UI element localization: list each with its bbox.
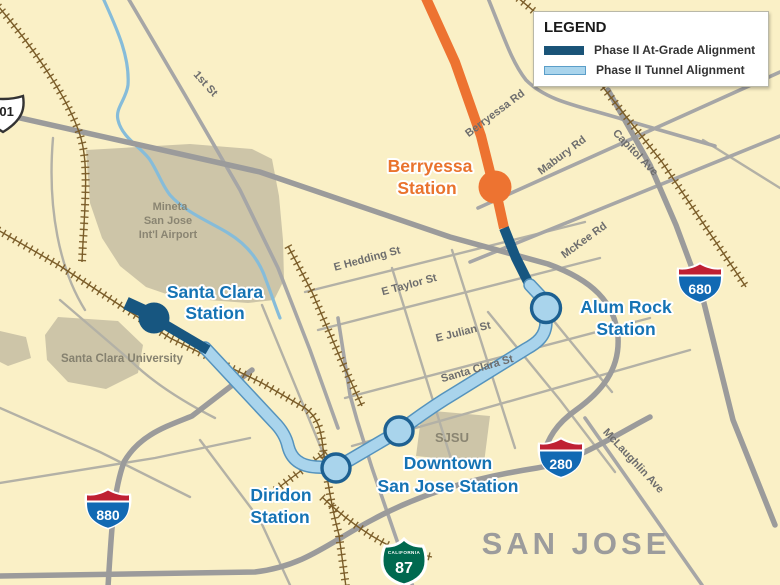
label-alum-rock-2: Station: [596, 319, 655, 339]
station-marker-alum-rock: [532, 294, 561, 323]
label-airport-2: San Jose: [144, 215, 192, 227]
label-diridon-1: Diridon: [250, 485, 311, 505]
tunnel-segment: [205, 285, 546, 468]
legend-item-tunnel: Phase II Tunnel Alignment: [544, 63, 758, 77]
station-marker-berryessa: [479, 171, 512, 204]
street: [0, 408, 190, 497]
ca87-shield: CALIFORNIA 87: [382, 539, 426, 585]
street: [52, 138, 85, 310]
label-julian-st: E Julian St: [435, 319, 493, 344]
tunnel-swatch: [544, 66, 586, 75]
legend-box: LEGEND Phase II At-Grade Alignment Phase…: [533, 11, 769, 87]
legend-item-label: Phase II Tunnel Alignment: [596, 63, 745, 77]
label-downtown-2: San Jose Station: [377, 476, 518, 496]
svg-text:CALIFORNIA: CALIFORNIA: [388, 550, 421, 555]
label-diridon-2: Station: [250, 507, 309, 527]
legend-item-label: Phase II At-Grade Alignment: [594, 43, 755, 57]
svg-text:880: 880: [96, 507, 120, 523]
label-taylor-st: E Taylor St: [380, 272, 438, 298]
svg-text:680: 680: [688, 281, 712, 297]
label-airport-1: Mineta: [153, 201, 189, 213]
label-santa-clara-2: Station: [185, 303, 244, 323]
label-downtown-1: Downtown: [404, 453, 492, 473]
i680-shield: 680: [676, 262, 723, 304]
label-sjsu: SJSU: [435, 430, 469, 445]
label-university: Santa Clara University: [61, 353, 184, 365]
svg-text:101: 101: [0, 104, 14, 119]
i880-freeway: [108, 370, 252, 585]
us101-shield: 101: [0, 96, 24, 132]
svg-text:280: 280: [549, 456, 573, 472]
svg-text:87: 87: [395, 560, 413, 577]
small-block-area: [0, 331, 31, 366]
legend-title: LEGEND: [544, 19, 758, 36]
station-marker-downtown: [385, 417, 413, 445]
label-airport-3: Int'l Airport: [139, 229, 198, 241]
legend-item-at-grade: Phase II At-Grade Alignment: [544, 43, 758, 57]
at-grade-swatch: [544, 46, 584, 55]
label-1st-st: 1st St: [191, 69, 220, 100]
map-canvas[interactable]: 101 680 280 880 CALIFORNIA 87 1st St Ber…: [0, 0, 780, 585]
station-marker-santa-clara: [139, 303, 170, 334]
i280-shield: 280: [537, 437, 584, 479]
label-santa-clara-1: Santa Clara: [167, 282, 264, 302]
station-marker-diridon: [322, 454, 350, 482]
label-city: SAN JOSE: [482, 526, 671, 561]
label-alum-rock-1: Alum Rock: [580, 297, 672, 317]
mckee-road: [470, 136, 780, 262]
label-berryessa-1: Berryessa: [388, 156, 473, 176]
label-berryessa-2: Station: [397, 178, 456, 198]
map-svg: 101 680 280 880 CALIFORNIA 87 1st St Ber…: [0, 0, 780, 585]
i880-shield: 880: [84, 488, 131, 530]
